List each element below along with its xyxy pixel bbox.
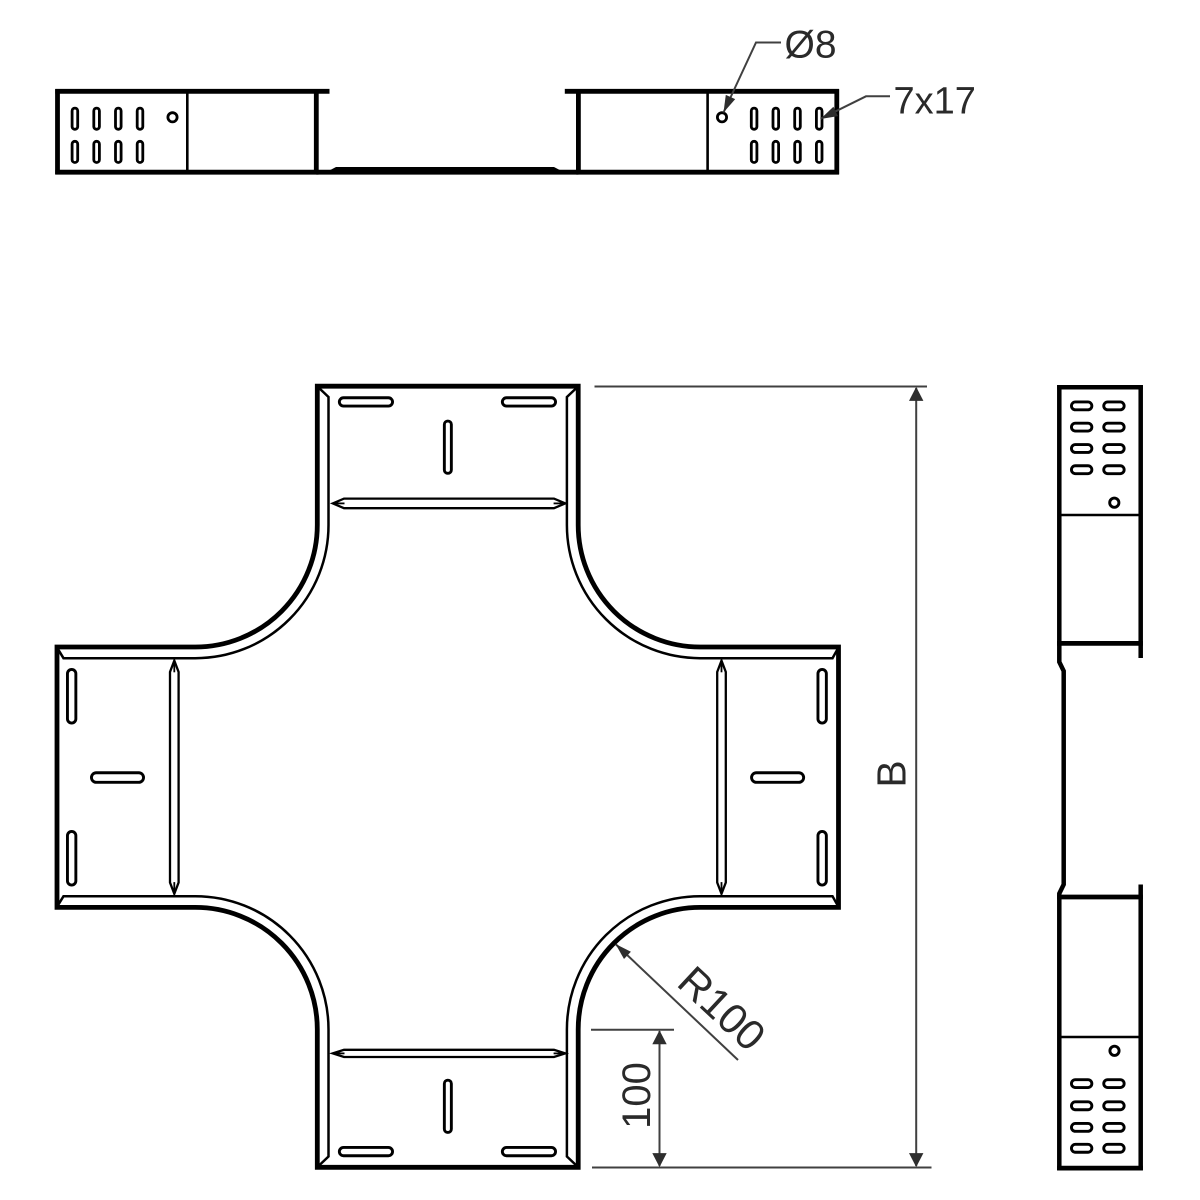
- svg-text:100: 100: [615, 1062, 659, 1129]
- svg-text:7x17: 7x17: [894, 81, 976, 123]
- svg-text:Ø8: Ø8: [785, 23, 837, 66]
- svg-text:B: B: [869, 760, 915, 787]
